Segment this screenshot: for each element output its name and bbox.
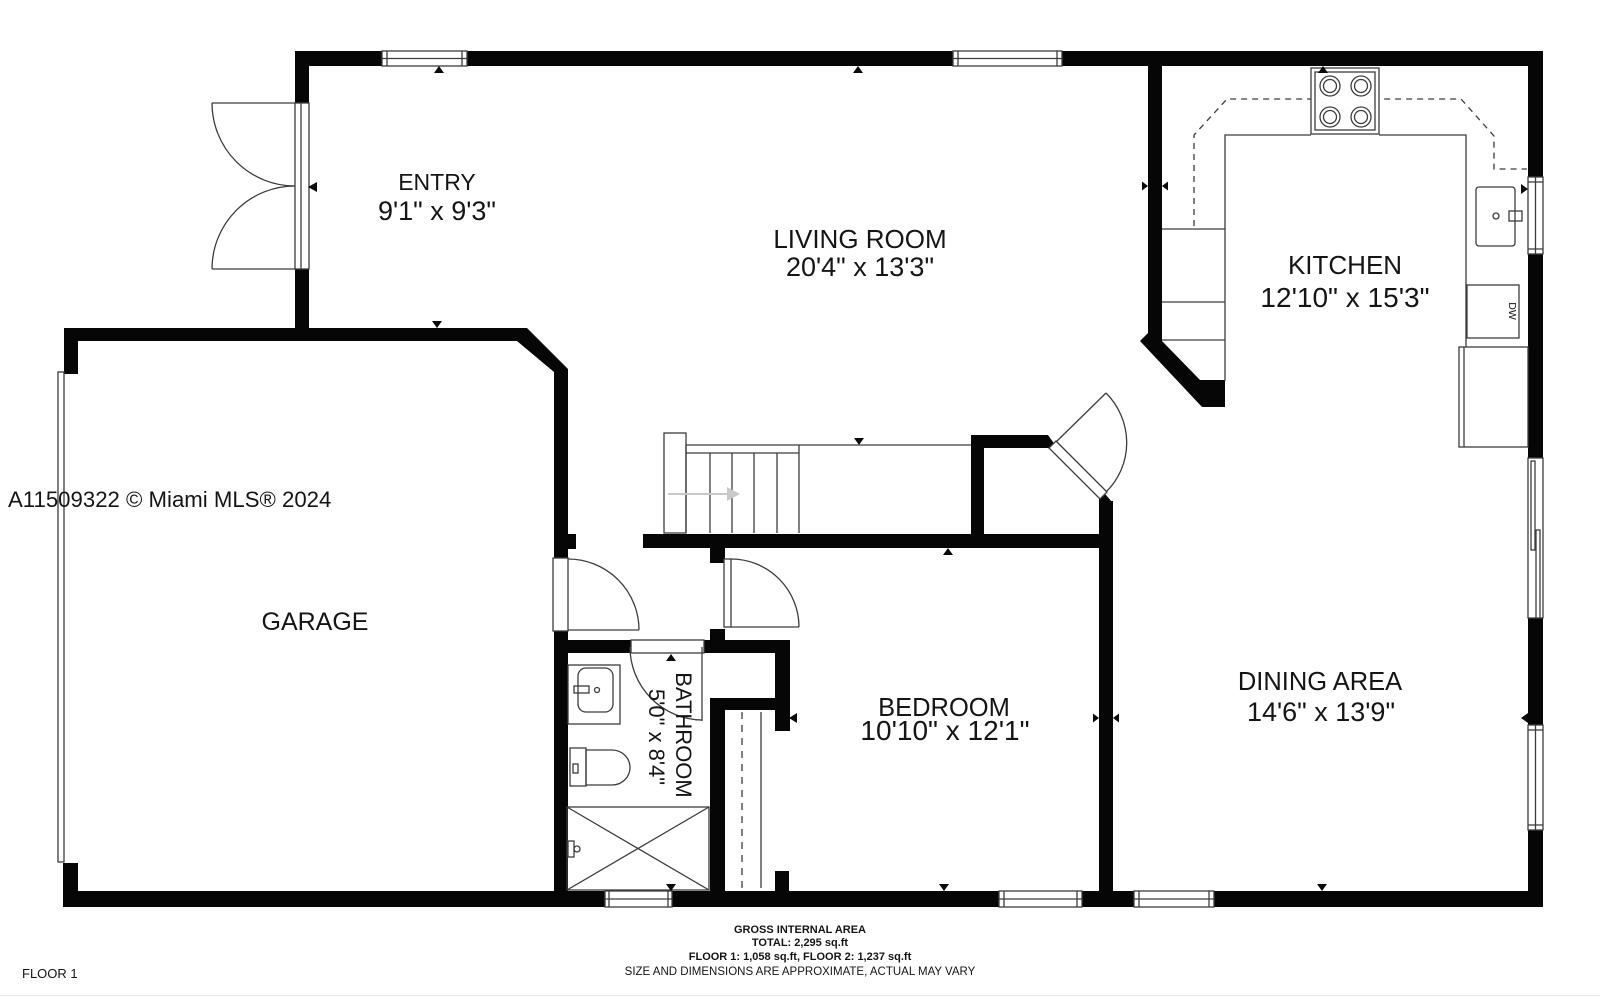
svg-text:GROSS INTERNAL AREA: GROSS INTERNAL AREA xyxy=(734,924,866,936)
svg-text:FLOOR 1: FLOOR 1 xyxy=(22,966,78,981)
svg-text:SIZE AND DIMENSIONS ARE APPROX: SIZE AND DIMENSIONS ARE APPROXIMATE, ACT… xyxy=(625,966,976,978)
svg-text:BATHROOM: BATHROOM xyxy=(671,672,696,797)
svg-text:A11509322 © Miami MLS® 2024: A11509322 © Miami MLS® 2024 xyxy=(8,487,331,512)
svg-text:10'10" x 12'1": 10'10" x 12'1" xyxy=(860,715,1029,746)
svg-text:DINING AREA: DINING AREA xyxy=(1238,668,1402,696)
svg-text:FLOOR 1: 1,058 sq.ft, FLOOR 2:: FLOOR 1: 1,058 sq.ft, FLOOR 2: 1,237 sq.… xyxy=(689,951,912,963)
svg-text:9'1" x 9'3": 9'1" x 9'3" xyxy=(378,196,496,226)
svg-text:ENTRY: ENTRY xyxy=(398,169,476,195)
svg-text:14'6" x 13'9": 14'6" x 13'9" xyxy=(1247,697,1395,727)
svg-text:12'10" x 15'3": 12'10" x 15'3" xyxy=(1260,282,1429,313)
svg-text:20'4" x 13'3": 20'4" x 13'3" xyxy=(786,252,934,282)
svg-text:LIVING ROOM: LIVING ROOM xyxy=(773,224,946,254)
svg-text:DW: DW xyxy=(1506,302,1518,320)
svg-text:KITCHEN: KITCHEN xyxy=(1288,250,1402,280)
svg-text:GARAGE: GARAGE xyxy=(262,608,369,636)
svg-text:TOTAL: 2,295 sq.ft: TOTAL: 2,295 sq.ft xyxy=(752,937,849,949)
svg-text:5'0" x 8'4": 5'0" x 8'4" xyxy=(644,689,669,785)
